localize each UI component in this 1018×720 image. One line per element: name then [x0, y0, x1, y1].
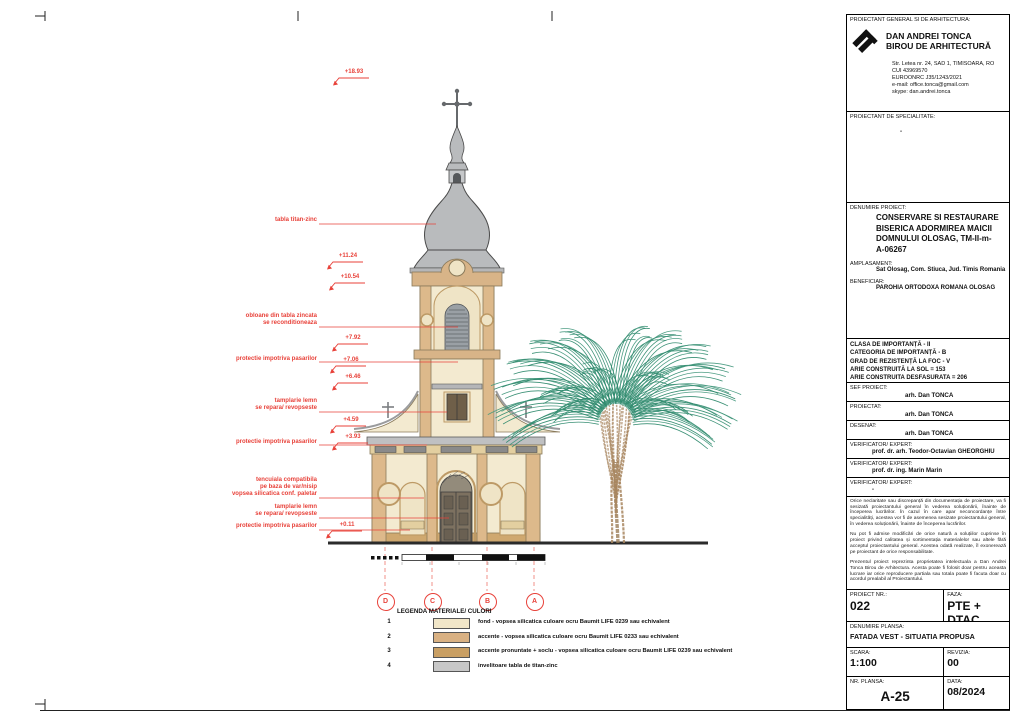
annotation-tencuiala: tencuiala compatibila pe baza de var/nis… — [177, 477, 317, 498]
disclaimer-paragraph: Nu pot fi admise modificări de orice nat… — [850, 532, 1006, 556]
title-block-verificator-2: VERIFICATOR/ EXPERT: prof. dr. ing. Mari… — [847, 458, 1009, 477]
proiectant-specialitate-value: - — [900, 128, 1006, 135]
scara-label: SCARA: — [850, 650, 940, 656]
legend-color-swatch — [433, 632, 470, 643]
annotation-tamplarie-1: tamplarie lemn se repara/ revopseste — [177, 398, 317, 412]
title-block-sheet-number-row: NR. PLANSA: A-25 DATA: 08/2024 — [847, 676, 1009, 709]
proiectant-general-label: PROIECTANT GENERAL SI DE ARHITECTURA: — [850, 17, 1006, 23]
annotation-protectie-1: protectie impotriva pasarilor — [177, 356, 317, 363]
proiectant-specialitate-label: PROIECTANT DE SPECIALITATE: — [850, 114, 1006, 120]
annotation-protectie-2: protectie impotriva pasarilor — [177, 439, 317, 446]
elevation-label: +10.54 — [333, 274, 367, 280]
legend-item-label: accente pronuntate + soclu - vopsea sili… — [478, 646, 732, 654]
title-block-project-number-row: PROIECT NR.: 022 FAZA: PTE + DTAC — [847, 589, 1009, 621]
tower-mid-level — [420, 359, 494, 440]
annotation-protectie-3: protectie impotriva pasarilor — [177, 523, 317, 530]
role-label: DESENAT: — [850, 423, 1006, 429]
scara-value: 1:100 — [850, 657, 940, 669]
legend-item-label: accente - vopsea silicatica culoare ocru… — [478, 632, 679, 640]
disclaimer-paragraph: Orice neclaritate sau discrepanță din do… — [850, 499, 1006, 529]
firm-logo-icon — [850, 27, 880, 57]
faza-value: PTE + DTAC — [947, 599, 1006, 621]
legend-color-swatch — [433, 661, 470, 672]
beneficiar-value: PAROHIA ORTODOXA ROMANA OLOSAG — [876, 285, 1006, 291]
proiect-nr-value: 022 — [850, 599, 940, 613]
revizia-value: 00 — [947, 657, 1006, 669]
title-block-scale-row: SCARA: 1:100 REVIZIA: 00 — [847, 647, 1009, 676]
data-label: DATA: — [947, 679, 1006, 685]
firm-name: DAN ANDREI TONCA BIROU DE ARHITECTURĂ — [886, 31, 991, 57]
elevation-label: +7.06 — [334, 357, 368, 363]
elevation-label: +3.93 — [336, 434, 370, 440]
legend-title: LEGENDA MATERIALE/ CULORI — [397, 608, 492, 615]
role-value: prof. dr. ing. Marin Marin — [872, 468, 1006, 474]
church-facade-drawing — [328, 89, 708, 543]
title-block-classification: CLASA DE IMPORTANȚĂ - II CATEGORIA DE IM… — [847, 338, 1009, 382]
faza-label: FAZA: — [947, 592, 1006, 598]
legend-item-number: 1 — [384, 619, 394, 625]
disclaimer-paragraph: Prezentul proiect reprezinta proprietate… — [850, 560, 1006, 584]
elevation-label: +4.59 — [334, 417, 368, 423]
grid-bubble-a: A — [526, 593, 544, 611]
legend-item-number: 2 — [384, 634, 394, 640]
elevation-label: +18.93 — [337, 69, 371, 75]
onion-dome — [414, 126, 500, 268]
main-facade — [367, 437, 545, 543]
legend-item-label: invelitoare tabla de titan-zinc — [478, 661, 558, 669]
proiect-nr-label: PROIECT NR.: — [850, 592, 940, 598]
role-label: SEF PROIECT: — [850, 385, 1006, 391]
denumire-proiect-label: DENUMIRE PROIECT: — [850, 205, 1006, 211]
title-block-plansa-row: DENUMIRE PLANSA: FATADA VEST - SITUATIA … — [847, 621, 1009, 647]
title-block-proiectant-specialitate: PROIECTANT DE SPECIALITATE: - — [847, 111, 1009, 203]
annotation-tabla-titan-zinc: tabla titan-zinc — [177, 217, 317, 224]
elevation-label: +6.46 — [336, 374, 370, 380]
role-label: VERIFICATOR/ EXPERT: — [850, 442, 1006, 448]
title-block-disclaimer: Orice neclaritate sau discrepanță din do… — [847, 496, 1009, 590]
title-block-verificator-3: VERIFICATOR/ EXPERT: - — [847, 477, 1009, 496]
nr-plansa-value: A-25 — [850, 689, 940, 704]
annotation-tamplarie-2: tamplarie lemn se repara/ revopseste — [177, 504, 317, 518]
plansa-name: FATADA VEST - SITUATIA PROPUSA — [850, 632, 1006, 641]
title-block-verificator-1: VERIFICATOR/ EXPERT: prof. dr. arh. Teod… — [847, 439, 1009, 458]
title-block-sef-proiect: SEF PROIECT: arh. Dan TONCA — [847, 382, 1009, 401]
elevation-label: +11.24 — [331, 253, 365, 259]
legend-color-swatch — [433, 618, 470, 629]
entrance-door — [437, 471, 475, 543]
louvered-window — [445, 304, 469, 352]
project-title: CONSERVARE SI RESTAURARE BISERICA ADORMI… — [876, 213, 1006, 255]
title-block-project: DENUMIRE PROIECT: CONSERVARE SI RESTAURA… — [847, 202, 1009, 338]
drawing-sheet: tabla titan-zinc obloane din tabla zinca… — [0, 0, 1018, 720]
title-block-proiectant-general: PROIECTANT GENERAL SI DE ARHITECTURA: DA… — [847, 15, 1009, 111]
classification-lines: CLASA DE IMPORTANȚĂ - II CATEGORIA DE IM… — [850, 341, 1006, 382]
revizia-label: REVIZIA: — [947, 650, 1006, 656]
legend-item-label: fond - vopsea silicatica culoare ocru Ba… — [478, 617, 670, 625]
title-block-desenat: DESENAT: arh. Dan TONCA — [847, 420, 1009, 439]
nr-plansa-label: NR. PLANSA: — [850, 679, 940, 685]
legend-item-number: 3 — [384, 648, 394, 654]
legend-color-swatch — [433, 647, 470, 658]
denumire-plansa-label: DENUMIRE PLANSA: — [850, 624, 1006, 630]
annotation-obloane: obloane din tabla zincata se recondition… — [177, 313, 317, 327]
role-label: PROIECTAT: — [850, 404, 1006, 410]
title-block: PROIECTANT GENERAL SI DE ARHITECTURA: DA… — [846, 14, 1010, 710]
amplasament-value: Sat Olosag, Com. Stiuca, Jud. Timis Roma… — [876, 267, 1006, 273]
scale-bar — [371, 555, 545, 566]
role-value: arh. Dan TONCA — [905, 430, 1006, 437]
bell-tower-level — [414, 286, 500, 359]
role-value: arh. Dan TONCA — [905, 411, 1006, 418]
grid-bubble-d: D — [377, 593, 395, 611]
firm-address: Str. Letea nr. 24, SAD 1, TIMISOARA, RO … — [892, 61, 1006, 96]
role-value: - — [872, 487, 1006, 493]
title-block-proiectat: PROIECTAT: arh. Dan TONCA — [847, 401, 1009, 420]
role-label: VERIFICATOR/ EXPERT: — [850, 480, 1006, 486]
elevation-label: +7.92 — [336, 335, 370, 341]
elevation-label: +0.11 — [330, 522, 364, 528]
role-value: prof. dr. arh. Teodor-Octavian GHEORGHIU — [872, 449, 1006, 455]
tower-cross — [442, 89, 472, 128]
legend-item-number: 4 — [384, 663, 394, 669]
role-value: arh. Dan TONCA — [905, 392, 1006, 399]
data-value: 08/2024 — [947, 686, 1006, 698]
role-label: VERIFICATOR/ EXPERT: — [850, 461, 1006, 467]
